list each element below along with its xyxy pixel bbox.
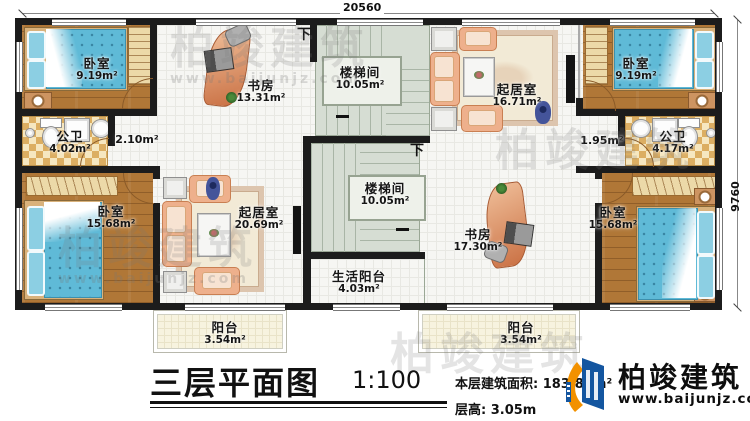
floor-plan-page: 卧室 9.19m² 书房 13.31m² 楼梯间 10.05m² 起居室 16.… bbox=[0, 0, 750, 421]
room-label-bedroom-br: 卧室 15.68m² bbox=[589, 206, 638, 232]
side-table bbox=[431, 27, 457, 51]
brand-name: 柏竣建筑 bbox=[618, 356, 742, 396]
pillow bbox=[697, 255, 715, 299]
room-label-living-top: 起居室 16.71m² bbox=[493, 83, 542, 109]
wall-interior bbox=[303, 252, 425, 259]
room-area: 20.69m² bbox=[235, 220, 284, 232]
side-table bbox=[163, 177, 187, 199]
room-area: 10.05m² bbox=[336, 80, 385, 92]
title-underline bbox=[150, 401, 447, 404]
side-table bbox=[163, 271, 187, 293]
floor-height-label: 层高: bbox=[455, 403, 486, 418]
sofa bbox=[162, 201, 192, 267]
room-area: 17.30m² bbox=[454, 242, 503, 254]
room-label-study-bottom: 书房 17.30m² bbox=[454, 228, 503, 254]
tv bbox=[293, 206, 301, 254]
room-label-living-bottom: 起居室 20.69m² bbox=[235, 206, 284, 232]
bed-blanket bbox=[658, 29, 692, 87]
side-table bbox=[431, 107, 457, 131]
room-area: 15.68m² bbox=[87, 219, 136, 231]
window bbox=[16, 208, 23, 290]
window bbox=[52, 19, 126, 26]
room-area: 13.31m² bbox=[237, 93, 286, 105]
person-figure bbox=[206, 177, 220, 200]
wall-hook bbox=[25, 128, 35, 138]
closet bbox=[26, 176, 118, 196]
room-area: 9.19m² bbox=[76, 71, 117, 83]
stair-down-label: 下 bbox=[297, 24, 311, 44]
balcony-right-floor bbox=[422, 314, 576, 349]
window bbox=[462, 19, 560, 26]
room-label-stair-top: 楼梯间 10.05m² bbox=[336, 66, 385, 92]
wall-interior bbox=[153, 173, 160, 179]
closet bbox=[128, 26, 151, 85]
room-label-bedroom-bl: 卧室 15.68m² bbox=[87, 205, 136, 231]
wall-interior bbox=[153, 203, 160, 303]
room-area: 4.03m² bbox=[332, 284, 386, 296]
partition-line bbox=[429, 25, 430, 136]
computer-monitor bbox=[504, 221, 535, 247]
window bbox=[716, 42, 723, 92]
room-label-bedroom-tr: 卧室 9.19m² bbox=[615, 57, 656, 83]
coffee-table bbox=[463, 57, 495, 97]
wall-interior bbox=[576, 166, 722, 173]
window bbox=[337, 19, 423, 26]
sofa-cushion bbox=[202, 272, 232, 289]
sofa-cushion bbox=[468, 110, 496, 126]
room-label-hall-left: 2.10m² bbox=[115, 134, 158, 146]
brand-logo-icon bbox=[560, 352, 612, 416]
balcony-door bbox=[447, 304, 553, 311]
closet bbox=[585, 26, 608, 85]
armchair bbox=[459, 27, 497, 51]
sofa-cushion bbox=[434, 80, 454, 102]
nightstand bbox=[694, 188, 716, 205]
nightstand bbox=[24, 92, 52, 109]
room-area: 10.05m² bbox=[361, 196, 410, 208]
wall-interior bbox=[310, 18, 317, 62]
floor-height-text: 层高: 3.05m bbox=[455, 399, 536, 418]
pillow bbox=[695, 60, 714, 89]
title-underline-thin bbox=[150, 407, 447, 408]
pillow bbox=[27, 206, 45, 251]
pillow bbox=[697, 211, 715, 255]
room-label-bedroom-tl: 卧室 9.19m² bbox=[76, 57, 117, 83]
bed-blanket bbox=[662, 208, 696, 298]
floor-height-value: 3.05m bbox=[491, 403, 537, 418]
stair-down-label: 下 bbox=[410, 140, 424, 160]
room-area: 4.02m² bbox=[49, 144, 90, 156]
stair-dash bbox=[336, 115, 349, 118]
room-label-stair-bottom: 楼梯间 10.05m² bbox=[361, 182, 410, 208]
pillow bbox=[695, 31, 714, 60]
coffee-table bbox=[197, 213, 231, 257]
plan-scale: 1:100 bbox=[352, 366, 421, 394]
room-label-bath-right: 公卫 4.17m² bbox=[652, 130, 693, 156]
room-label-hall-right: 1.95m² bbox=[580, 135, 623, 147]
washbasin bbox=[631, 119, 651, 138]
room-area: 1.95m² bbox=[580, 135, 623, 147]
dimension-label-top: 20560 bbox=[340, 1, 384, 14]
room-area: 2.10m² bbox=[115, 134, 158, 146]
sofa-cushion bbox=[166, 235, 186, 262]
room-label-service-balcony: 生活阳台 4.03m² bbox=[332, 270, 386, 296]
room-area: 3.54m² bbox=[500, 335, 541, 347]
sofa-cushion bbox=[465, 31, 491, 46]
wall-interior bbox=[108, 116, 115, 146]
sofa-cushion bbox=[166, 206, 186, 233]
sofa bbox=[430, 52, 460, 106]
tv bbox=[566, 55, 575, 103]
room-label-study-top: 书房 13.31m² bbox=[237, 79, 286, 105]
wall-interior bbox=[303, 136, 311, 310]
dimension-line-right bbox=[737, 20, 738, 308]
window bbox=[610, 19, 695, 26]
wall-interior bbox=[15, 166, 160, 173]
room-area: 9.19m² bbox=[615, 71, 656, 83]
armchair bbox=[194, 267, 240, 295]
brand-website: www.baijunjz.com bbox=[618, 391, 750, 407]
nightstand bbox=[688, 92, 716, 109]
window bbox=[610, 304, 690, 311]
window bbox=[333, 304, 400, 311]
computer-monitor bbox=[204, 47, 235, 73]
plan-title: 三层平面图 bbox=[150, 358, 320, 404]
window bbox=[16, 42, 23, 92]
window bbox=[45, 304, 122, 311]
pillow bbox=[27, 31, 46, 60]
room-label-balcony-right: 阳台 3.54m² bbox=[500, 321, 541, 347]
plant bbox=[496, 183, 507, 194]
sofa-cushion bbox=[434, 56, 454, 78]
stair-dash bbox=[396, 228, 409, 231]
partition-line bbox=[578, 25, 580, 100]
window bbox=[196, 19, 296, 26]
room-label-balcony-left: 阳台 3.54m² bbox=[204, 321, 245, 347]
pillow bbox=[27, 251, 45, 296]
room-area: 4.17m² bbox=[652, 144, 693, 156]
plant bbox=[226, 92, 237, 103]
pillow bbox=[27, 60, 46, 89]
room-label-bath-left: 公卫 4.02m² bbox=[49, 130, 90, 156]
armchair bbox=[461, 105, 503, 132]
wall-interior bbox=[15, 109, 157, 116]
floor-area-label: 本层建筑面积: bbox=[455, 377, 538, 392]
window bbox=[716, 208, 723, 290]
room-area: 16.71m² bbox=[493, 97, 542, 109]
balcony-right bbox=[418, 310, 580, 353]
wall-interior bbox=[595, 173, 602, 179]
dimension-label-right: 9760 bbox=[729, 178, 742, 215]
balcony-door bbox=[185, 304, 285, 311]
room-area: 3.54m² bbox=[204, 335, 245, 347]
partition-line bbox=[424, 259, 425, 303]
room-area: 15.68m² bbox=[589, 220, 638, 232]
